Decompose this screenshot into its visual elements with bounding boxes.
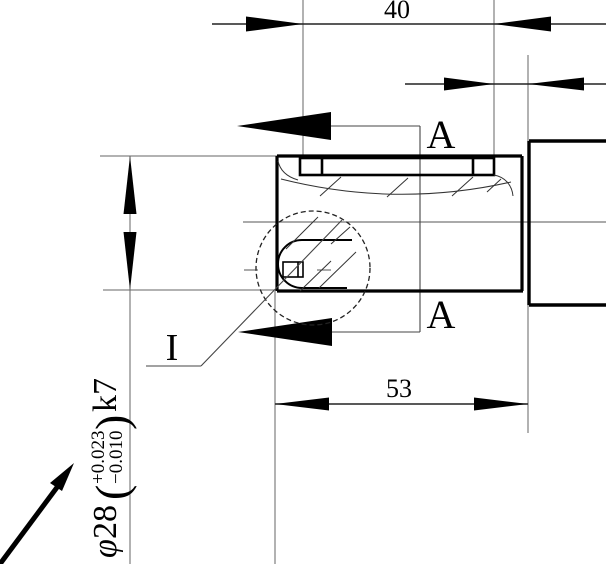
pocket-hatching [286,217,356,291]
keyseat-bottom-arc [281,179,511,194]
fit-class-label: k7 [87,378,124,412]
dim-53-arrow-right [474,398,528,411]
section-arrow-lower [238,318,332,346]
dim-right-arrow-left [444,78,494,91]
hatch-stroke-3 [452,177,473,196]
diameter-value: 28 [87,505,124,539]
tolerance-open-paren: ( [86,485,137,500]
dim-40-arrow-left [246,17,303,32]
tolerance-lower-deviation: −0.010 [106,431,127,484]
dim-right-arrow-right [528,78,584,91]
section-arrow-upper [237,112,331,140]
dim-53-label: 53 [386,374,412,403]
dimension-arrows [124,17,585,411]
detail-circle [256,211,370,325]
dim-40-arrow-right [494,17,551,32]
phi28-callout: φ 28 ( +0.023 −0.010 ) k7 [86,378,137,558]
section-label-lower: A [427,292,456,337]
hatch-stroke-1 [320,177,341,196]
keyseat-projection [278,161,513,197]
dim-53-arrow-left [275,398,329,411]
pocket-hatch-4 [331,227,350,244]
keyway-band-rect [300,158,494,175]
shaft-drawing-svg: 40 53 A A I φ 28 ( +0.023 −0.010 ) k7 [0,0,606,564]
dim-phi28-arrow-down [124,232,137,290]
detail-pocket [278,217,356,291]
keyseat-left-end-arc [278,161,298,180]
corner-pointer [0,463,74,564]
engineering-drawing-canvas: 40 53 A A I φ 28 ( +0.023 −0.010 ) k7 [0,0,606,564]
diameter-symbol: φ [87,539,124,558]
detail-label: I [166,327,179,369]
tolerance-close-paren: ) [86,415,137,430]
pocket-hatch-3 [300,261,331,291]
dimension-lines [212,24,606,404]
corner-pointer-shaft [0,486,58,564]
dim-phi28-arrow-up [124,156,137,214]
keyway-top-band [300,158,494,175]
dim-40-label: 40 [384,0,410,24]
section-label-upper: A [427,112,456,157]
large-section-outline [529,141,606,305]
hatch-stroke-4 [487,179,501,192]
corner-pointer-head [50,463,74,491]
